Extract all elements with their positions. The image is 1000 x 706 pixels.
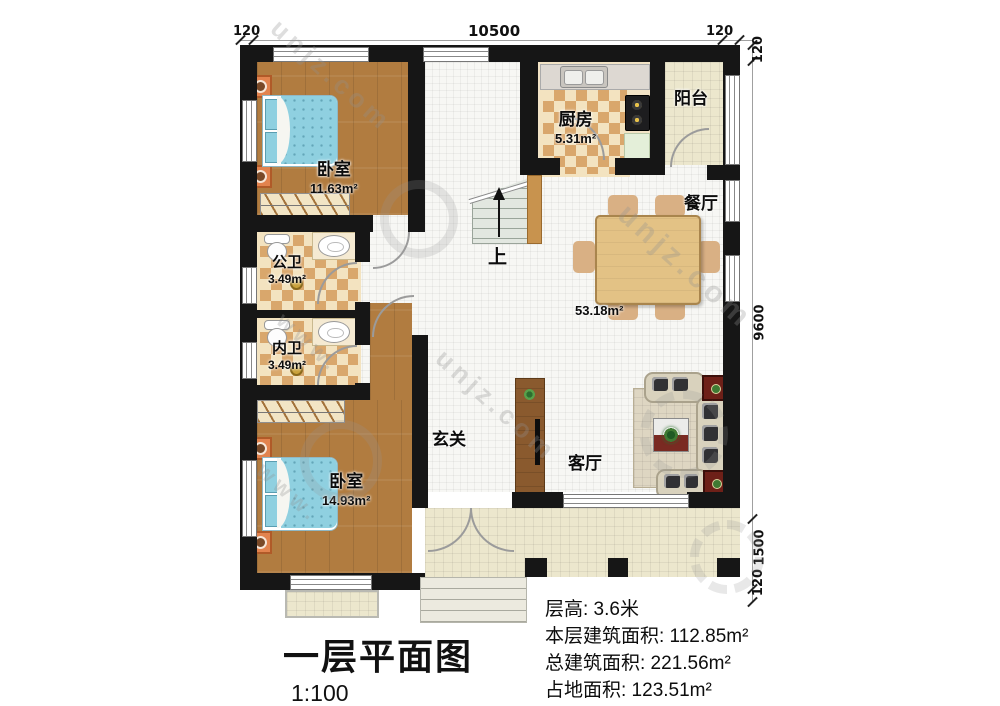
- wall: [257, 310, 355, 318]
- dim-right-top: 120: [751, 36, 766, 63]
- living-label: 客厅: [568, 455, 602, 473]
- dining-label: 餐厅: [684, 195, 718, 213]
- sofa-cushion: [652, 377, 668, 391]
- sofa-cushion: [702, 403, 718, 419]
- wall: [355, 302, 370, 345]
- balcony-label: 阳台: [674, 90, 708, 108]
- kitchen-stove: [625, 95, 650, 131]
- public-bath-window: [242, 267, 257, 304]
- dim-line-top: [240, 40, 752, 41]
- wall: [257, 385, 355, 400]
- wall: [257, 215, 373, 232]
- info-floor-height: 层高: 3.6米: [545, 596, 748, 623]
- private-bath-window: [242, 342, 257, 379]
- wall: [650, 62, 665, 175]
- stair-side-wall: [527, 175, 542, 244]
- terrace-pillar: [717, 558, 740, 577]
- dining-chair: [573, 241, 595, 273]
- bedroom2-left-window: [242, 460, 257, 537]
- bedroom1-bed: [262, 95, 338, 167]
- floor-plan: 卧室 11.63m² 厨房 5.31m² 阳台 餐厅 公卫 3.49m² 内卫 …: [240, 45, 740, 630]
- wall: [520, 158, 560, 175]
- bay-window-floor: [285, 590, 379, 618]
- dining-right-window2: [725, 255, 740, 302]
- wall: [420, 498, 428, 508]
- coffee-table: [653, 418, 689, 452]
- sofa-cushion: [684, 474, 698, 488]
- dim-right-bottom: 120: [751, 569, 766, 596]
- kitchen-label: 厨房 5.31m²: [555, 111, 596, 147]
- entry-steps: [420, 577, 527, 623]
- info-footprint-area: 占地面积: 123.51m²: [545, 677, 748, 704]
- bedroom1-label: 卧室 11.63m²: [310, 161, 358, 197]
- hall-top-window: [423, 47, 489, 62]
- tv-icon: [535, 419, 540, 465]
- info-floor-area: 本层建筑面积: 112.85m²: [545, 623, 748, 650]
- wall: [408, 62, 425, 232]
- plan-scale: 1:100: [291, 680, 349, 706]
- sofa-cushion: [702, 447, 718, 463]
- sofa-cushion: [672, 377, 688, 391]
- private-bath-label: 内卫 3.49m²: [268, 341, 306, 373]
- stairs-up-label: 上: [488, 248, 507, 268]
- plant-icon: [524, 389, 535, 400]
- public-bath-label: 公卫 3.49m²: [268, 255, 306, 287]
- dim-right-terrace: 1500: [753, 529, 768, 565]
- living-window: [563, 494, 689, 508]
- sofa-cushion: [664, 474, 680, 488]
- stair-arrow-head: [493, 187, 505, 200]
- balcony-railing: [725, 75, 740, 165]
- dining-chair: [608, 195, 638, 217]
- open-area-label: 53.18m²: [575, 303, 623, 318]
- wall: [355, 232, 370, 262]
- wall: [615, 158, 650, 175]
- wall: [687, 492, 740, 508]
- info-total-area: 总建筑面积: 221.56m²: [545, 650, 748, 677]
- stair-arrow-shaft: [498, 197, 500, 237]
- bedroom2-wardrobe: [257, 400, 345, 423]
- dim-top-left: 120: [233, 24, 260, 39]
- plan-title-block: 一层平面图 1:100: [283, 628, 533, 706]
- dining-chair: [655, 195, 685, 217]
- floor-plan-canvas: 卧室 11.63m² 厨房 5.31m² 阳台 餐厅 公卫 3.49m² 内卫 …: [0, 0, 1000, 706]
- terrace-pillar: [608, 558, 628, 577]
- terrace-pillar: [525, 558, 547, 577]
- bedroom1-left-window: [242, 100, 257, 162]
- private-bath-basin: [318, 321, 350, 343]
- public-bath-basin: [318, 235, 350, 257]
- wall: [355, 383, 370, 400]
- dining-table: [595, 215, 701, 305]
- bedroom1-top-window: [273, 47, 369, 62]
- page-title: 一层平面图: [283, 636, 473, 677]
- dim-right-main: 9600: [753, 304, 768, 340]
- dim-top-width: 10500: [468, 22, 520, 40]
- dim-top-right: 120: [706, 24, 733, 39]
- dining-chair: [698, 241, 720, 273]
- tv-cabinet: [515, 378, 545, 502]
- bay-window: [290, 575, 372, 590]
- kitchen-sink: [560, 66, 608, 88]
- bedroom2-label: 卧室 14.93m²: [322, 473, 370, 509]
- wall: [412, 335, 428, 508]
- sofa-cushion: [702, 425, 718, 441]
- plan-info-block: 层高: 3.6米 本层建筑面积: 112.85m² 总建筑面积: 221.56m…: [545, 596, 748, 704]
- entry-label: 玄关: [432, 431, 466, 449]
- wall: [512, 492, 563, 508]
- dining-right-window: [725, 180, 740, 222]
